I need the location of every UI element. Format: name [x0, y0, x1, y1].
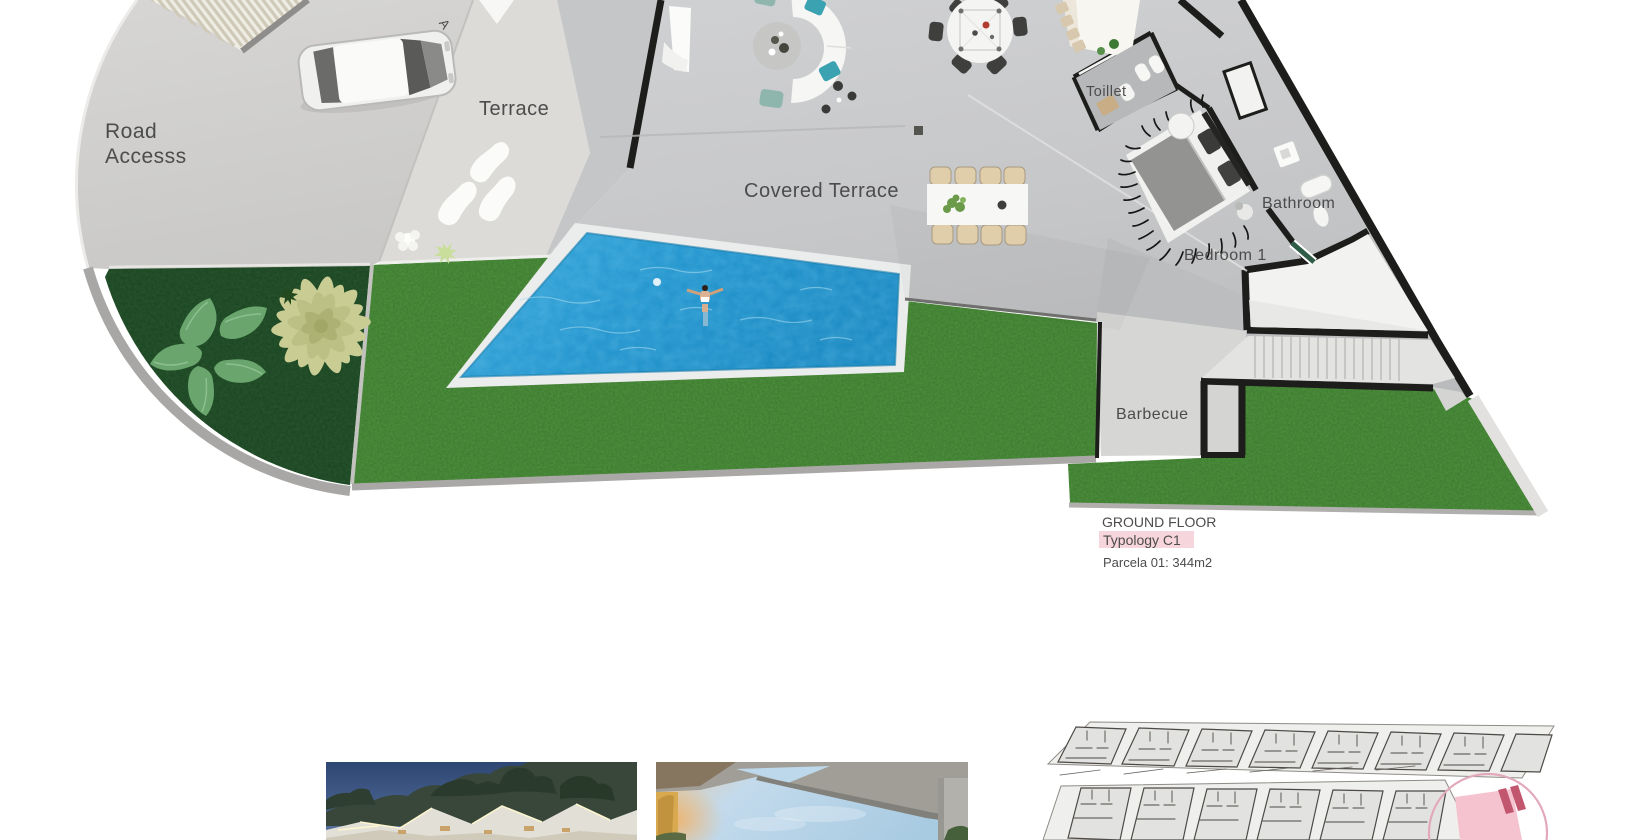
svg-text:Terrace: Terrace [479, 98, 549, 120]
svg-text:Typology C1: Typology C1 [1103, 532, 1181, 548]
svg-text:Parcela 01: 344m2: Parcela 01: 344m2 [1103, 555, 1212, 570]
svg-text:Covered Terrace: Covered Terrace [744, 180, 899, 202]
svg-text:Accesss: Accesss [105, 145, 187, 168]
svg-text:Barbecue: Barbecue [1116, 406, 1189, 423]
svg-text:Bedroom 1: Bedroom 1 [1184, 247, 1267, 264]
svg-text:Bathroom: Bathroom [1262, 195, 1335, 212]
svg-text:Toillet: Toillet [1086, 84, 1127, 100]
svg-text:GROUND FLOOR: GROUND FLOOR [1102, 514, 1216, 530]
svg-text:Road: Road [105, 120, 157, 143]
